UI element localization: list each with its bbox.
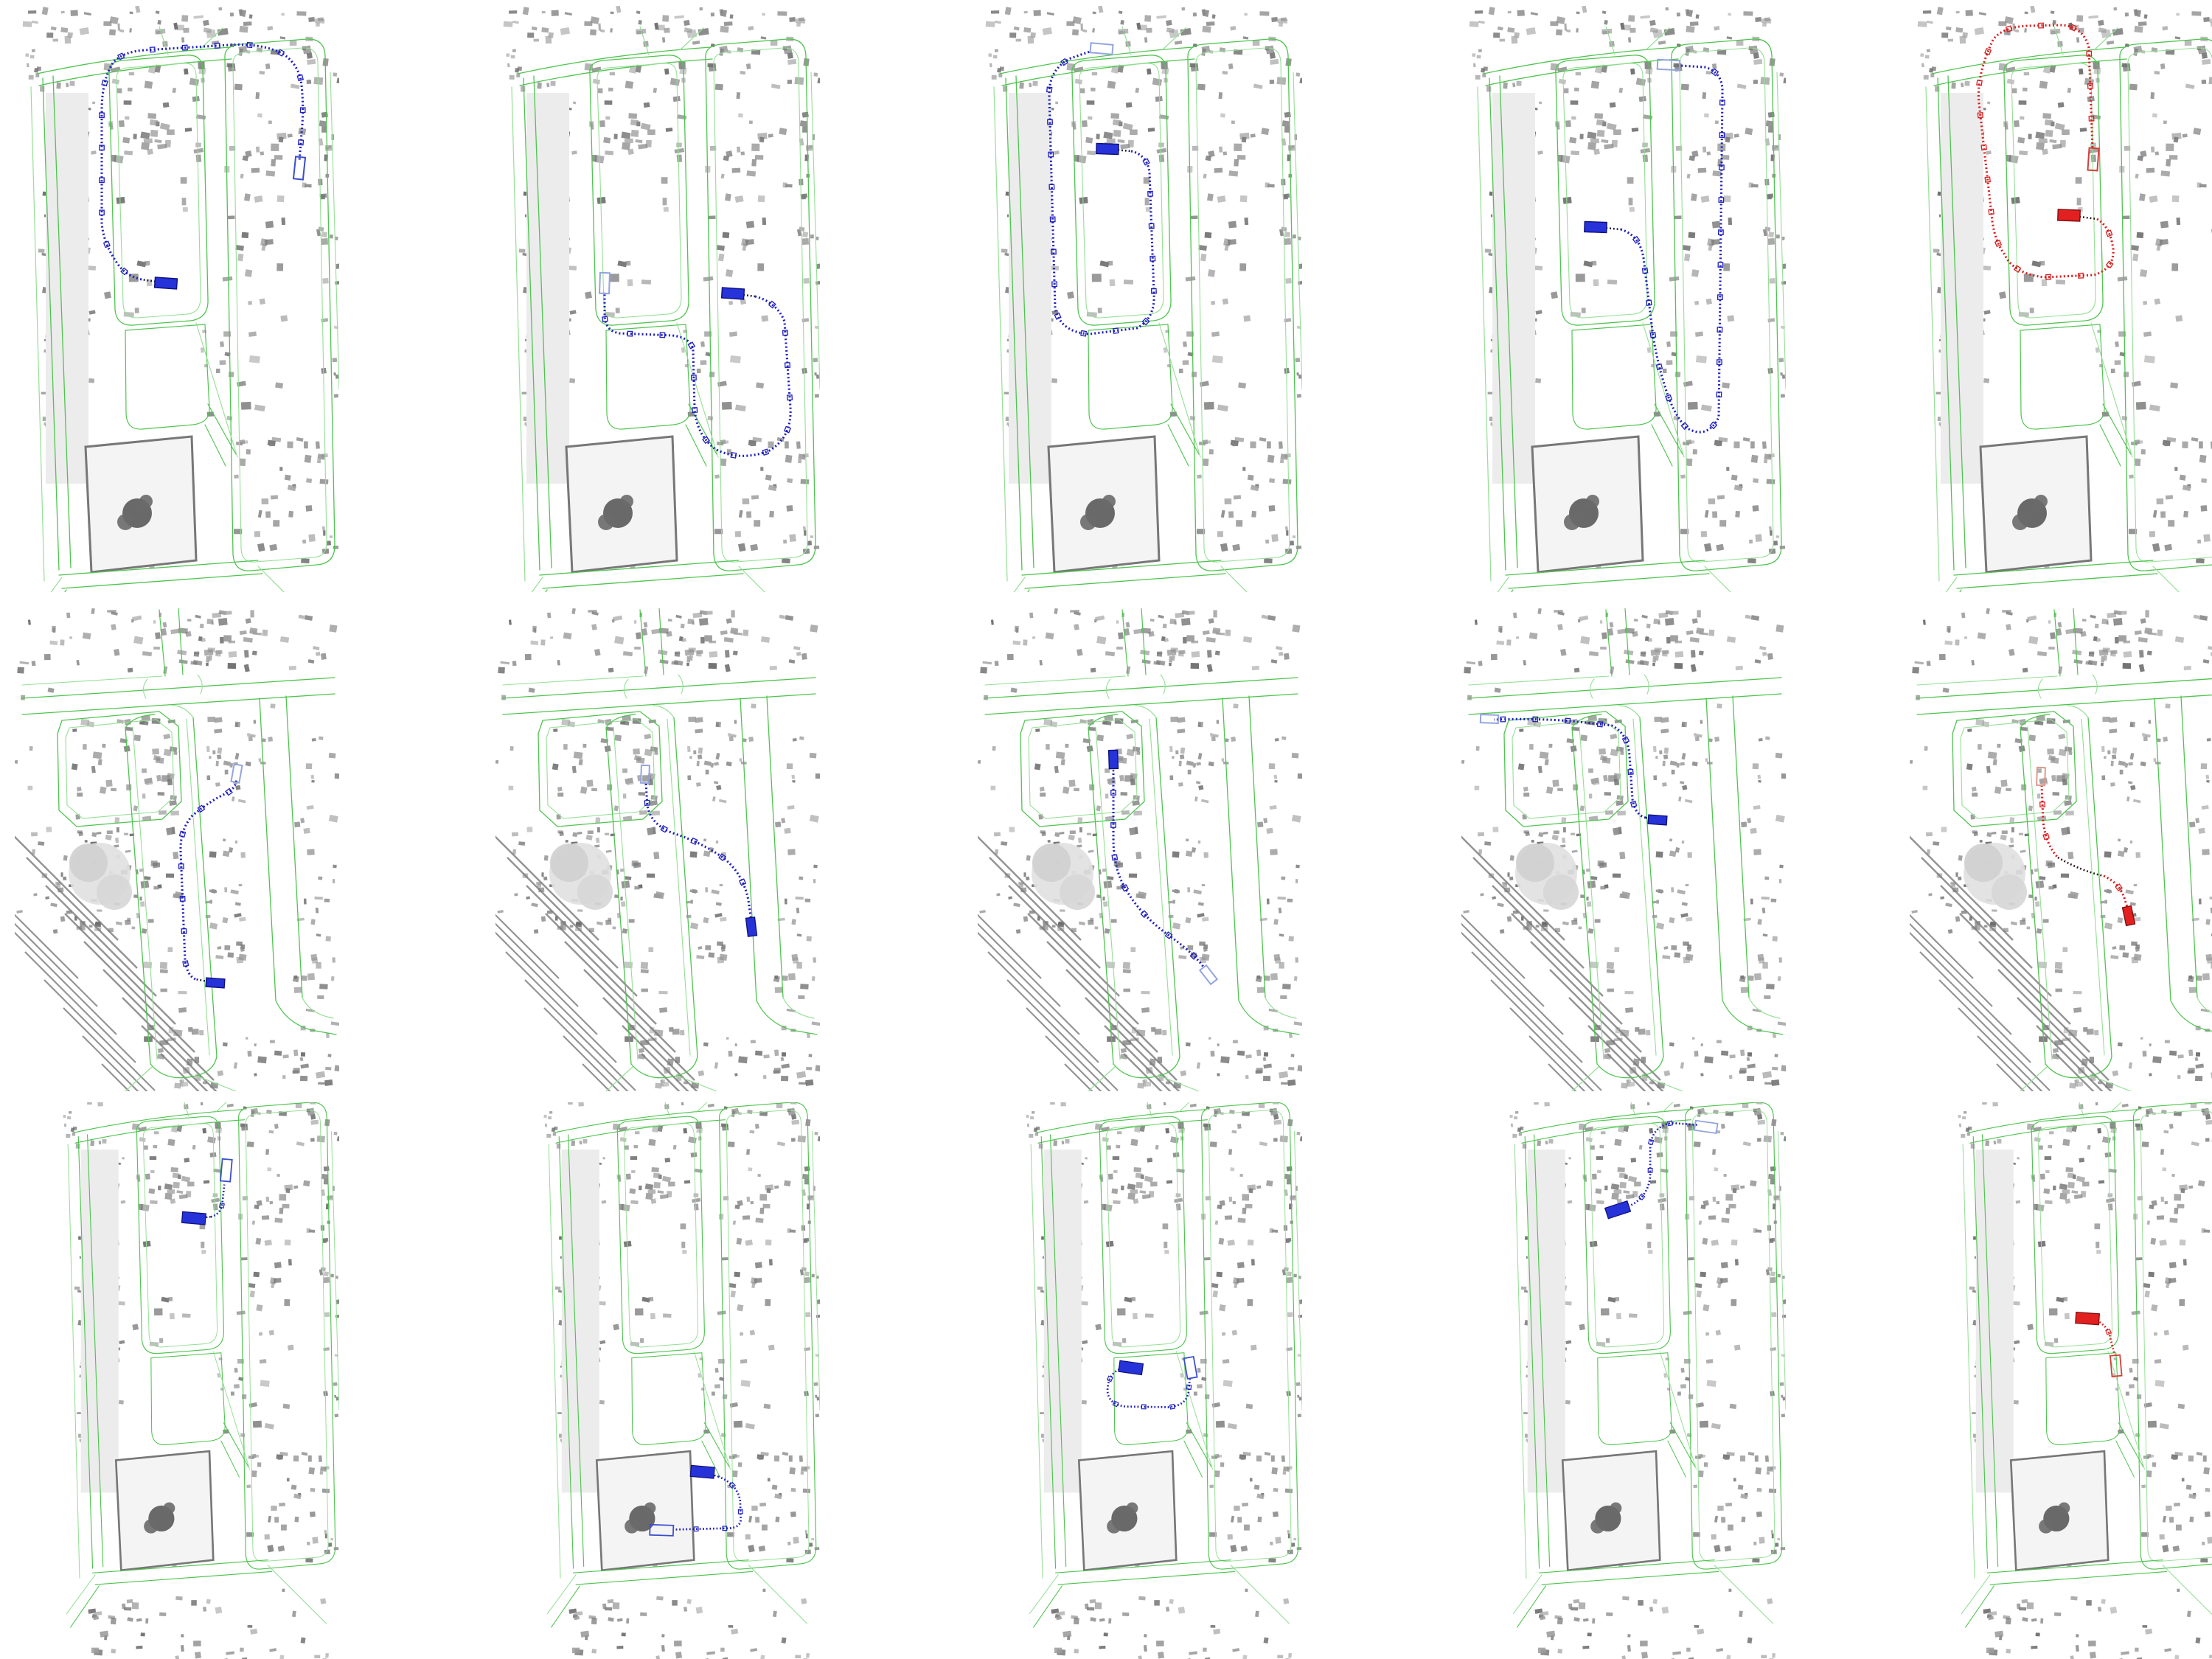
noise-blob	[1040, 787, 1045, 792]
noise-blob	[1557, 624, 1563, 630]
noise-blob	[1065, 744, 1068, 748]
noise-blob	[610, 274, 619, 282]
noise-blob	[2025, 12, 2028, 15]
noise-blob	[610, 28, 613, 32]
noise-blob	[2055, 989, 2062, 992]
noise-blob	[1986, 766, 1991, 773]
noise-blob	[1192, 847, 1196, 853]
noise-blob	[552, 763, 559, 770]
lane-line	[133, 727, 157, 1060]
noise-blob	[720, 953, 728, 961]
noise-blob	[509, 10, 517, 14]
noise-blob	[2171, 263, 2178, 271]
lane-line	[1159, 323, 1200, 457]
noise-blob	[1728, 218, 1732, 225]
noise-blob	[563, 633, 572, 640]
noise-blob	[1946, 27, 1952, 31]
noise-blob	[750, 443, 754, 446]
noise-blob	[2115, 360, 2121, 365]
noise-blob	[1237, 1051, 1245, 1056]
noise-blob	[2152, 113, 2157, 117]
noise-blob	[1506, 639, 1511, 645]
noise-blob	[1278, 897, 1286, 900]
waypoint-marker	[783, 330, 788, 335]
noise-blob	[308, 534, 316, 542]
noise-blob	[2023, 88, 2028, 91]
noise-blob	[740, 758, 742, 762]
noise-blob	[1250, 442, 1256, 448]
noise-blob	[1724, 195, 1731, 202]
noise-blob	[170, 811, 179, 816]
noise-blob	[154, 1308, 162, 1315]
noise-blob	[321, 653, 327, 660]
noise-blob	[107, 610, 116, 613]
noise-blob	[2128, 781, 2132, 784]
noise-blob	[1700, 632, 1708, 635]
noise-blob	[651, 811, 660, 816]
hatch-line	[1461, 868, 1525, 978]
noise-blob	[242, 440, 248, 443]
noise-blob	[61, 11, 65, 14]
noise-blob	[154, 1131, 159, 1134]
noise-blob	[814, 546, 820, 549]
noise-blob	[2164, 443, 2168, 446]
noise-blob	[787, 478, 793, 483]
noise-blob	[1088, 727, 1096, 731]
noise-blob	[1678, 796, 1681, 801]
noise-blob	[762, 13, 765, 16]
map-panel-row2-col2	[495, 608, 820, 1091]
noise-blob	[1535, 310, 1542, 314]
noise-blob	[1545, 759, 1549, 765]
noise-blob	[662, 37, 665, 42]
noise-blob	[606, 727, 613, 731]
noise-blob	[1228, 63, 1234, 69]
noise-blob	[1640, 148, 1650, 154]
noise-blob	[738, 543, 746, 552]
noise-blob	[625, 876, 631, 880]
noise-blob	[1552, 779, 1559, 787]
noise-blob	[1217, 404, 1228, 411]
noise-blob	[569, 378, 575, 383]
noise-blob	[1613, 827, 1622, 835]
noise-blob	[714, 913, 722, 918]
noise-blob	[2034, 897, 2037, 900]
noise-blob	[2188, 1049, 2193, 1056]
noise-blob	[1745, 128, 1753, 135]
noise-blob	[2118, 1042, 2123, 1046]
noise-blob	[143, 1241, 151, 1248]
lane-graph-layer	[22, 608, 336, 1091]
noise-blob	[122, 137, 130, 144]
noise-blob	[1253, 40, 1260, 46]
lane-line	[1029, 720, 1137, 818]
noise-blob	[2098, 20, 2104, 26]
noise-blob	[1107, 261, 1113, 266]
noise-blob	[50, 902, 57, 907]
noise-blob	[723, 232, 730, 238]
noise-blob	[1133, 629, 1142, 635]
noise-blob	[735, 195, 744, 203]
noise-blob	[574, 751, 583, 759]
noise-blob	[1664, 748, 1669, 754]
noise-blob	[118, 1301, 125, 1306]
noise-blob	[46, 827, 52, 832]
noise-blob	[2091, 155, 2097, 163]
noise-blob	[611, 12, 614, 15]
noise-blob	[307, 805, 314, 810]
tree-blob	[2034, 495, 2048, 508]
noise-blob	[1156, 15, 1166, 19]
noise-blob	[1196, 781, 1200, 784]
noise-blob	[2203, 534, 2211, 542]
noise-blob	[1032, 636, 1035, 639]
noise-blob	[1680, 762, 1685, 765]
noise-blob	[608, 88, 613, 91]
noise-blob	[176, 1190, 183, 1194]
noise-blob	[703, 838, 706, 841]
noise-blob	[1288, 145, 1295, 151]
noise-blob	[1169, 775, 1173, 780]
noise-blob	[1607, 279, 1617, 284]
noise-blob	[133, 134, 137, 139]
noise-blob	[2140, 150, 2146, 157]
noise-blob	[2112, 754, 2116, 759]
noise-blob	[1280, 995, 1287, 999]
noise-blob	[1607, 969, 1615, 973]
noise-blob	[1750, 828, 1756, 834]
noise-blob	[1217, 1043, 1220, 1046]
noise-blob	[991, 10, 999, 14]
lane-line	[985, 694, 1298, 714]
noise-blob	[746, 511, 751, 518]
noise-blob	[248, 332, 257, 337]
noise-blob	[1008, 896, 1012, 900]
noise-blob	[60, 916, 66, 922]
noise-blob	[1211, 332, 1220, 337]
noise-blob	[1228, 511, 1234, 518]
noise-blob	[1264, 558, 1273, 563]
noise-blob	[1523, 787, 1528, 792]
noise-blob	[248, 301, 252, 305]
noise-blob	[243, 637, 253, 643]
noise-blob	[2170, 382, 2178, 388]
noise-blob	[1257, 821, 1263, 827]
noise-blob	[1601, 139, 1608, 143]
noise-blob	[2183, 133, 2188, 137]
noise-blob	[1680, 781, 1684, 784]
noise-blob	[214, 728, 222, 733]
lane-line	[994, 87, 1007, 581]
noise-blob	[591, 624, 597, 630]
noise-blob	[275, 382, 283, 388]
noise-blob	[1113, 130, 1121, 137]
noise-blob	[310, 954, 317, 961]
noise-blob	[1736, 666, 1743, 670]
hatch-line	[495, 868, 559, 978]
noise-blob	[1107, 139, 1116, 144]
noise-blob	[726, 762, 732, 767]
lane-line	[1606, 610, 1612, 676]
noise-blob	[260, 1380, 270, 1387]
lane-line	[260, 698, 276, 1001]
tree-blob	[2012, 514, 2028, 530]
noise-blob	[1571, 100, 1579, 105]
building-noise-layer	[1910, 608, 2212, 1089]
noise-blob	[1675, 847, 1680, 853]
noise-blob	[1634, 619, 1638, 622]
waypoint-marker	[226, 789, 232, 796]
noise-blob	[66, 83, 69, 87]
noise-blob	[573, 101, 576, 104]
noise-blob	[265, 239, 274, 245]
noise-blob	[1519, 728, 1523, 732]
noise-blob	[1955, 639, 1959, 645]
noise-blob	[705, 945, 711, 950]
noise-blob	[1208, 269, 1215, 277]
noise-blob	[1107, 876, 1113, 880]
map-panel-row2-col5	[1910, 608, 2212, 1091]
noise-blob	[1262, 615, 1267, 619]
lane-line	[193, 717, 217, 1057]
noise-blob	[2112, 946, 2116, 950]
noise-blob	[1630, 28, 1635, 33]
noise-blob	[762, 218, 766, 225]
noise-blob	[1987, 101, 1990, 104]
noise-blob	[226, 611, 232, 614]
noise-blob	[730, 14, 734, 18]
noise-blob	[1566, 29, 1571, 33]
noise-blob	[150, 119, 158, 126]
noise-blob	[1126, 734, 1133, 740]
noise-blob	[719, 799, 727, 803]
noise-blob	[1015, 626, 1019, 632]
noise-blob	[714, 1062, 718, 1069]
noise-blob	[1230, 26, 1236, 30]
noise-blob	[304, 442, 308, 449]
noise-blob	[319, 736, 324, 740]
noise-blob	[1620, 23, 1624, 30]
aerial-map-row1-col3	[978, 6, 1302, 592]
noise-blob	[807, 936, 812, 941]
noise-blob	[160, 989, 167, 992]
noise-blob	[641, 989, 647, 992]
noise-blob	[1009, 827, 1015, 832]
noise-blob	[2206, 780, 2210, 783]
noise-blob	[1951, 83, 1955, 89]
noise-blob	[666, 631, 672, 637]
noise-blob	[212, 751, 215, 755]
noise-blob	[1614, 779, 1619, 785]
noise-blob	[525, 654, 532, 660]
noise-blob	[1941, 827, 1947, 832]
noise-blob	[2028, 134, 2032, 139]
noise-blob	[1158, 142, 1164, 147]
noise-blob	[246, 618, 251, 624]
noise-blob	[707, 416, 713, 421]
noise-blob	[810, 753, 817, 759]
noise-blob	[1060, 909, 1065, 911]
noise-blob	[1747, 818, 1751, 823]
noise-blob	[107, 830, 113, 834]
noise-blob	[1559, 79, 1567, 85]
noise-blob	[150, 1156, 156, 1160]
noise-blob	[1180, 1071, 1186, 1077]
map-panel-row3-col1	[15, 1102, 339, 1659]
noise-blob	[783, 540, 787, 544]
noise-blob	[2000, 835, 2007, 841]
noise-blob	[1110, 279, 1116, 287]
lane-line	[1478, 87, 1491, 581]
noise-blob	[1211, 301, 1215, 305]
noise-blob	[1129, 827, 1138, 835]
noise-blob	[252, 1220, 256, 1225]
noise-blob	[1062, 787, 1070, 794]
noise-blob	[1034, 10, 1041, 16]
noise-blob	[1298, 375, 1302, 379]
noise-blob	[2143, 301, 2147, 305]
noise-blob	[119, 1400, 124, 1405]
noise-blob	[1723, 263, 1730, 271]
lane-line	[546, 720, 655, 818]
lane-line	[503, 676, 643, 685]
noise-blob	[760, 467, 763, 471]
noise-blob	[140, 901, 145, 907]
noise-blob	[1245, 1075, 1249, 1079]
noise-blob	[1694, 733, 1697, 737]
noise-blob	[605, 919, 611, 925]
noise-blob	[1503, 83, 1507, 89]
noise-blob	[1714, 737, 1719, 742]
noise-blob	[625, 139, 633, 144]
noise-blob	[1665, 7, 1669, 11]
noise-blob	[1688, 232, 1696, 238]
noise-blob	[1078, 838, 1082, 843]
noise-blob	[1478, 21, 1485, 24]
noise-blob	[620, 897, 622, 900]
noise-blob	[159, 810, 167, 815]
noise-blob	[111, 624, 116, 630]
noise-blob	[692, 41, 700, 45]
noise-blob	[1463, 910, 1469, 914]
noise-blob	[334, 1065, 339, 1071]
noise-blob	[1601, 632, 1607, 639]
waypoint-marker	[660, 333, 665, 338]
noise-blob	[312, 1537, 318, 1543]
noise-blob	[1197, 84, 1206, 91]
noise-blob	[720, 459, 726, 466]
noise-blob	[142, 651, 152, 656]
lane-line	[330, 72, 339, 389]
noise-blob	[102, 1139, 106, 1144]
noise-blob	[806, 145, 813, 151]
noise-blob	[308, 1455, 312, 1462]
noise-blob	[2046, 860, 2053, 866]
noise-blob	[1768, 127, 1773, 133]
noise-blob	[541, 27, 549, 32]
noise-blob	[2131, 942, 2138, 946]
noise-blob	[2180, 475, 2186, 481]
noise-blob	[627, 279, 633, 287]
noise-blob	[1571, 150, 1579, 155]
noise-blob	[1753, 805, 1761, 810]
noise-blob	[246, 1037, 248, 1040]
lane-line	[29, 577, 62, 592]
noise-blob	[1183, 360, 1189, 365]
noise-blob	[83, 744, 87, 750]
noise-blob	[262, 630, 268, 636]
noise-blob	[1683, 942, 1689, 946]
noise-blob	[1704, 113, 1709, 117]
noise-blob	[754, 520, 760, 526]
noise-blob	[1641, 652, 1646, 656]
noise-blob	[634, 755, 641, 761]
noise-blob	[274, 1517, 279, 1523]
noise-blob	[1141, 991, 1150, 994]
noise-blob	[1978, 744, 1982, 750]
noise-blob	[1939, 654, 1946, 660]
noise-blob	[265, 1534, 270, 1540]
noise-blob	[220, 360, 226, 365]
noise-blob	[501, 695, 506, 700]
noise-blob	[2098, 27, 2107, 33]
noise-blob	[781, 1057, 785, 1061]
noise-blob	[193, 15, 204, 19]
noise-blob	[2195, 1076, 2202, 1081]
noise-blob	[323, 1347, 330, 1351]
lane-line	[510, 577, 543, 592]
noise-blob	[2011, 88, 2017, 94]
lane-line	[2054, 610, 2060, 676]
noise-blob	[1779, 72, 1784, 76]
noise-blob	[1107, 81, 1116, 89]
noise-blob	[1675, 651, 1684, 658]
noise-blob	[1771, 1079, 1779, 1086]
noise-blob	[801, 193, 808, 198]
noise-blob	[591, 788, 597, 792]
noise-blob	[1147, 69, 1152, 74]
noise-blob	[158, 1186, 161, 1190]
noise-blob	[1729, 1075, 1733, 1079]
noise-blob	[331, 1021, 339, 1026]
noise-blob	[639, 1048, 644, 1053]
noise-blob	[745, 239, 754, 245]
noise-blob	[2090, 615, 2096, 619]
lane-line	[225, 39, 335, 571]
noise-blob	[2076, 15, 2083, 21]
noise-blob	[1237, 155, 1245, 160]
noise-blob	[768, 442, 773, 448]
noise-blob	[774, 1049, 779, 1056]
noise-blob	[1663, 946, 1668, 950]
noise-blob	[65, 36, 72, 44]
noise-blob	[648, 947, 653, 952]
lane-line	[2093, 675, 2097, 694]
map-panel-row1-col4	[1461, 6, 1786, 592]
noise-blob	[1912, 667, 1919, 673]
noise-blob	[1518, 763, 1525, 770]
noise-blob	[1219, 147, 1222, 153]
hatch-line	[1461, 896, 1544, 1006]
noise-blob	[1283, 193, 1290, 198]
noise-blob	[1649, 20, 1656, 26]
noise-blob	[1580, 734, 1587, 741]
noise-blob	[1598, 860, 1604, 866]
noise-blob	[1579, 616, 1588, 622]
noise-blob	[1775, 815, 1785, 823]
noise-blob	[212, 41, 219, 45]
noise-blob	[313, 646, 319, 650]
